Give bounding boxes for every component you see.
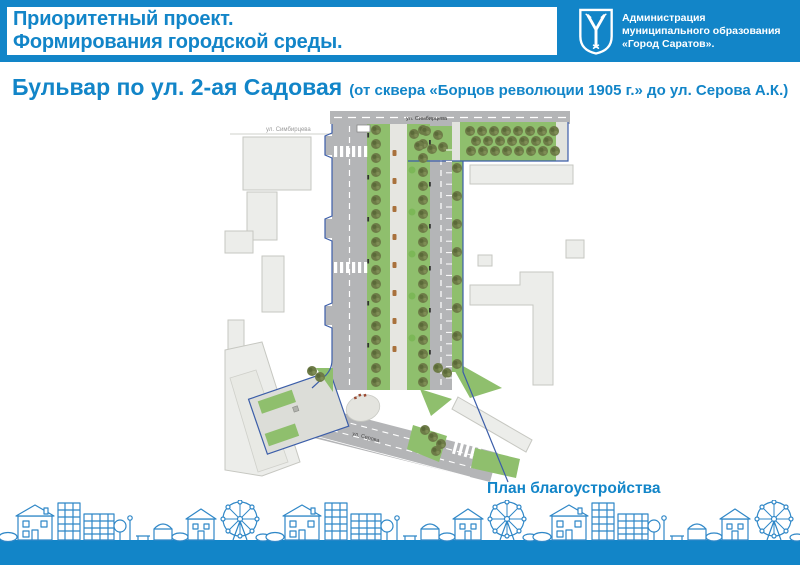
- parking-ticks: [446, 150, 452, 378]
- label-simbirtseva-left: ул. Симбирцева: [266, 127, 311, 133]
- page-title-subtitle: (от сквера «Борцов революции 1905 г.» до…: [349, 82, 788, 99]
- organization-line3: «Город Саратов».: [622, 38, 781, 51]
- program-title-line2: Формирования городской среды.: [13, 31, 557, 54]
- organization-name: Администрация муниципального образования…: [622, 12, 781, 51]
- saratov-coat-of-arms-icon: [577, 8, 615, 55]
- page-title-main: Бульвар по ул. 2-ая Садовая: [12, 74, 342, 101]
- slide-root: Приоритетный проект. Формирования городс…: [0, 0, 800, 565]
- bus-stop-marker: [357, 125, 370, 132]
- label-simbirtseva-road: ул. Симбирцева: [406, 116, 448, 122]
- site-plan-drawing: ул. Симбирцева ул. Симбирцева ул. Серова: [200, 105, 600, 505]
- program-title-box: Приоритетный проект. Формирования городс…: [7, 7, 557, 55]
- organization-line2: муниципального образования: [622, 25, 781, 38]
- header-bar: Приоритетный проект. Формирования городс…: [0, 0, 800, 62]
- plan-caption: План благоустройства: [487, 480, 661, 498]
- program-title-line1: Приоритетный проект.: [13, 8, 557, 31]
- organization-line1: Администрация: [622, 12, 781, 25]
- page-title: Бульвар по ул. 2-ая Садовая (от сквера «…: [12, 74, 792, 101]
- city-skyline-footer: [0, 500, 800, 565]
- footer-band: [0, 540, 800, 565]
